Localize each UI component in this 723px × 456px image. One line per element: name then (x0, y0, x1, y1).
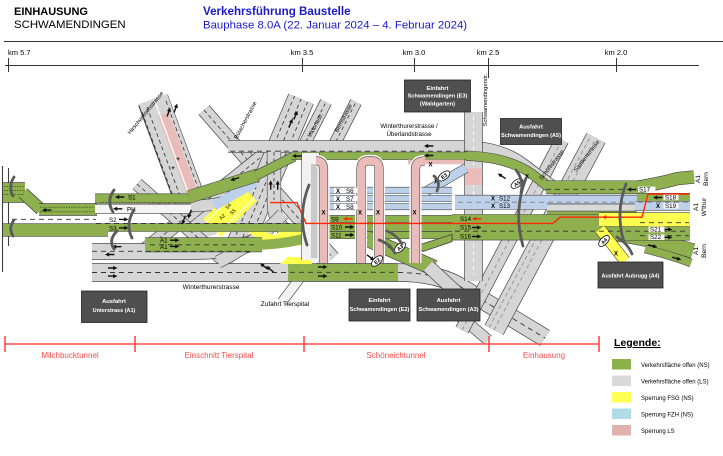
svg-text:Einhausung: Einhausung (523, 351, 565, 360)
svg-text:Einfahrt: Einfahrt (369, 298, 391, 304)
svg-text:X: X (491, 197, 495, 203)
svg-text:Schwamendingen (A3): Schwamendingen (A3) (419, 307, 479, 313)
svg-text:EINHAUSUNG: EINHAUSUNG (14, 6, 88, 18)
svg-text:Schwamendingen (E3): Schwamendingen (E3) (408, 94, 468, 100)
svg-text:S14: S14 (460, 216, 472, 223)
svg-text:Sperrung LS: Sperrung LS (641, 429, 675, 435)
svg-text:Einfahrt: Einfahrt (427, 86, 449, 92)
svg-text:X: X (429, 162, 433, 168)
svg-text:Sperrung FSG (NS): Sperrung FSG (NS) (641, 396, 694, 402)
svg-text:S8: S8 (346, 204, 354, 211)
svg-text:Milchbucktunnel: Milchbucktunnel (41, 351, 99, 360)
svg-text:S12: S12 (499, 196, 511, 203)
svg-text:S2: S2 (109, 217, 117, 224)
svg-text:X: X (376, 211, 380, 217)
svg-text:Sperrung FZH (NS): Sperrung FZH (NS) (641, 413, 693, 419)
svg-text:X: X (336, 205, 340, 211)
svg-text:S9: S9 (331, 216, 339, 223)
svg-text:Verkehrsfläche offen (LS): Verkehrsfläche offen (LS) (641, 380, 709, 386)
svg-text:S13: S13 (499, 203, 511, 210)
svg-text:S10: S10 (331, 225, 343, 232)
svg-text:A1: A1 (693, 203, 700, 211)
svg-text:km 2.0: km 2.0 (605, 48, 628, 57)
svg-text:S22: S22 (650, 234, 662, 241)
svg-text:X: X (336, 189, 340, 195)
svg-text:S15: S15 (460, 225, 472, 232)
svg-text:W'thur: W'thur (701, 197, 708, 216)
svg-text:Bauphase 8.0A (22. Januar 2024: Bauphase 8.0A (22. Januar 2024 – 4. Febr… (203, 20, 467, 32)
svg-text:Schwamendingerstr.: Schwamendingerstr. (483, 73, 489, 126)
svg-text:km 3.0: km 3.0 (403, 48, 426, 57)
svg-text:S18: S18 (665, 194, 677, 201)
svg-text:S7: S7 (346, 196, 354, 203)
svg-text:Ausfahrt: Ausfahrt (437, 298, 461, 304)
svg-text:A1: A1 (693, 247, 700, 255)
svg-text:SCHWAMENDINGEN: SCHWAMENDINGEN (14, 19, 126, 31)
svg-text:Ausfahrt Aubrugg (A4): Ausfahrt Aubrugg (A4) (602, 274, 660, 280)
svg-text:Überlandstrasse: Überlandstrasse (386, 131, 432, 138)
svg-text:S16: S16 (460, 234, 472, 241)
svg-text:Verkehrsfläche offen (NS): Verkehrsfläche offen (NS) (641, 363, 710, 369)
svg-text:Verkehrsführung Baustelle: Verkehrsführung Baustelle (203, 5, 351, 18)
svg-text:S19: S19 (665, 203, 677, 210)
svg-text:Ausfahrt: Ausfahrt (102, 299, 126, 305)
svg-text:S21: S21 (650, 226, 662, 233)
svg-text:A1: A1 (695, 175, 702, 183)
svg-text:Winterthurerstrasse /: Winterthurerstrasse / (380, 123, 438, 130)
svg-text:Bern: Bern (701, 244, 708, 258)
svg-text:S17: S17 (639, 186, 651, 193)
svg-text:Unterstrass (A1): Unterstrass (A1) (93, 308, 136, 314)
svg-text:(Waldgarten): (Waldgarten) (420, 102, 455, 108)
svg-text:Ausfahrt: Ausfahrt (519, 125, 543, 131)
svg-text:Schwamendingen (E2): Schwamendingen (E2) (350, 307, 410, 313)
svg-text:Schwamendingen (A5): Schwamendingen (A5) (501, 133, 561, 139)
svg-text:S6: S6 (346, 188, 354, 195)
svg-text:X: X (491, 204, 495, 210)
svg-text:km 3.5: km 3.5 (291, 48, 314, 57)
svg-text:Bern: Bern (703, 172, 710, 186)
svg-text:X: X (614, 251, 618, 257)
svg-text:km 5.7: km 5.7 (8, 48, 31, 57)
svg-text:Einschnitt Tierspital: Einschnitt Tierspital (185, 351, 254, 360)
svg-text:X: X (656, 204, 660, 210)
svg-text:Winterthurerstrasse: Winterthurerstrasse (183, 284, 240, 291)
svg-text:X: X (322, 211, 326, 217)
svg-text:+: + (171, 165, 175, 172)
svg-text:X: X (336, 197, 340, 203)
svg-text:Legende:: Legende: (614, 337, 661, 349)
svg-text:X: X (413, 211, 417, 217)
svg-text:km 2.5: km 2.5 (477, 48, 500, 57)
svg-text:S11: S11 (331, 233, 342, 240)
svg-text:S1: S1 (128, 195, 136, 202)
svg-text:X: X (358, 211, 362, 217)
svg-text:A1: A1 (160, 244, 168, 251)
svg-text:Zufahrt Tierspital: Zufahrt Tierspital (261, 301, 310, 308)
svg-text:Schöneichtunnel: Schöneichtunnel (366, 351, 425, 360)
svg-text:+: + (176, 156, 180, 163)
